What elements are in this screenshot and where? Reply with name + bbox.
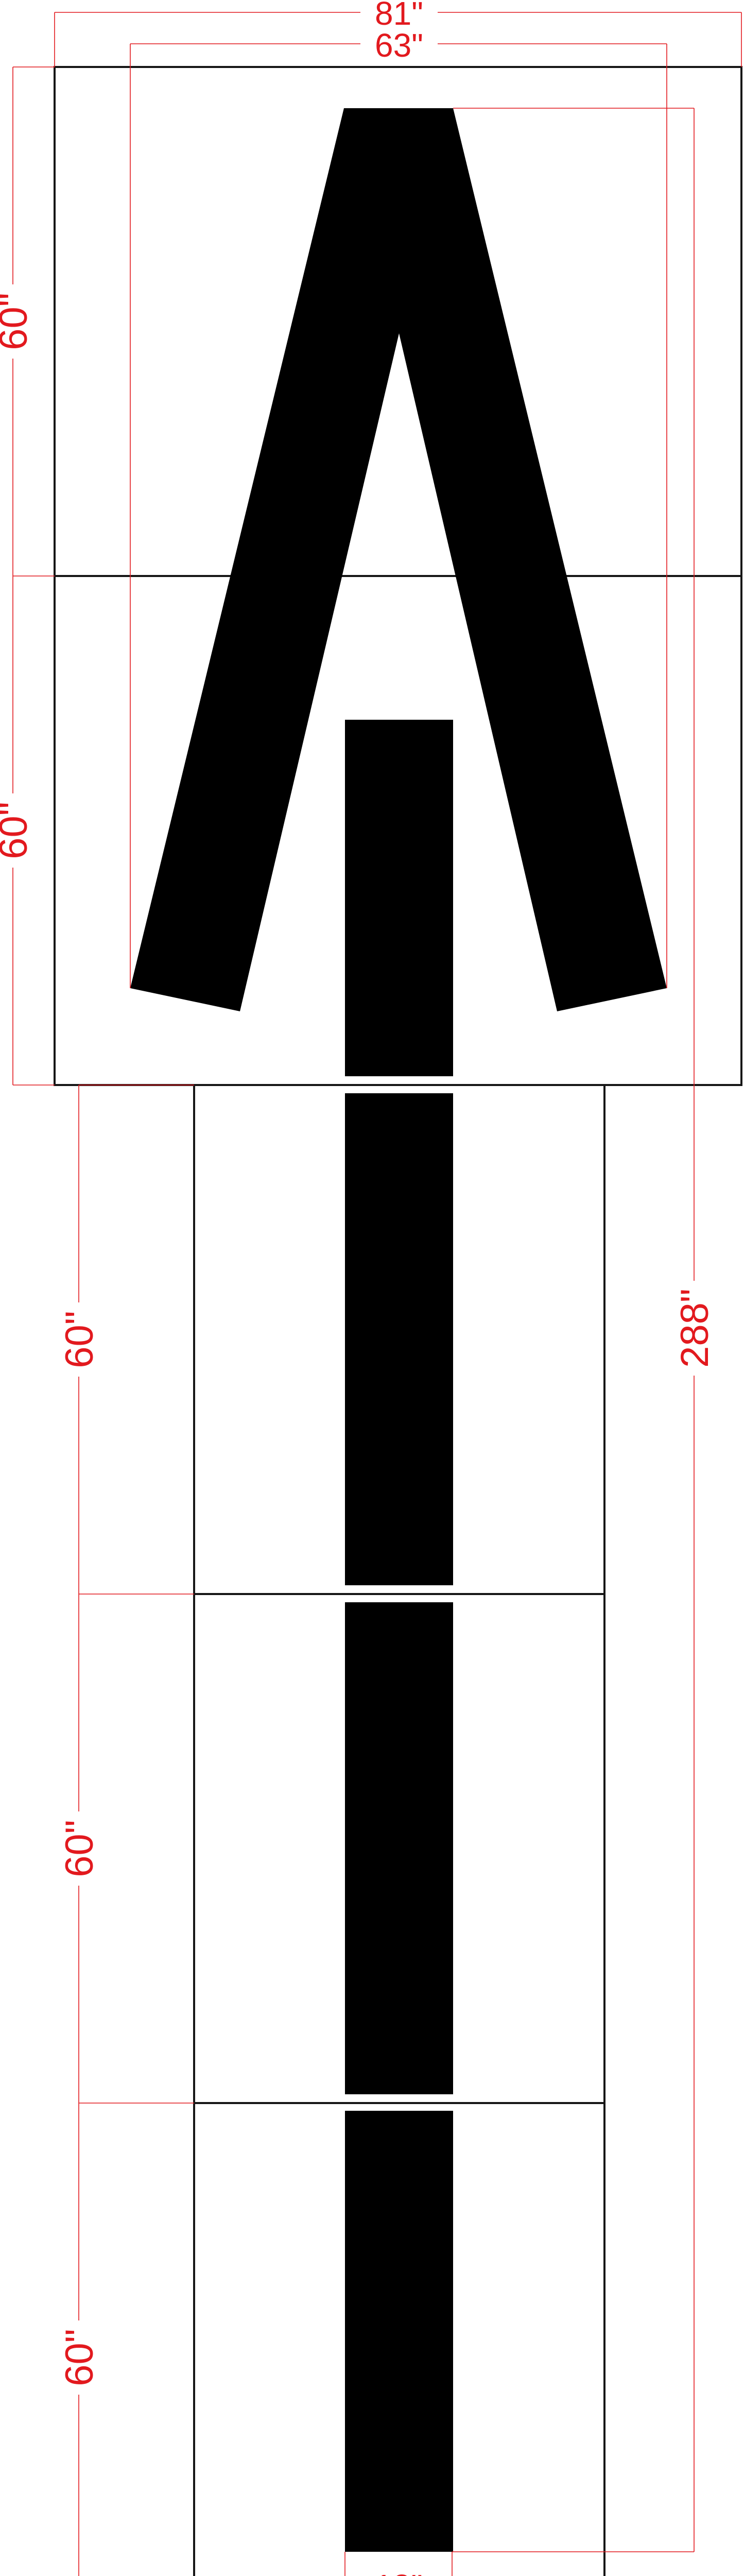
arrow-stencil-dimension-diagram: 81" 63" 60" 60" [0, 0, 744, 2576]
dim-label-288: 288" [673, 1289, 717, 1368]
dim-label-63: 63" [375, 27, 423, 64]
dim-label-60-panel3: 60" [58, 1311, 101, 1368]
arrow-stem-segment-4 [345, 2111, 453, 2552]
arrow-stem-segment-1 [345, 720, 453, 1076]
dim-label-13: 13" [374, 2568, 423, 2576]
dim-label-60-panel2: 60" [0, 802, 36, 859]
dim-60-bottom-panels: 60" 60" 60" [58, 1085, 194, 2576]
arrow-stem-segment-3 [345, 1602, 453, 2094]
dim-label-60-panel4: 60" [58, 1820, 101, 1877]
dim-label-60-panel1: 60" [0, 293, 36, 350]
dim-60-top-panels: 60" 60" [0, 67, 55, 1085]
dim-label-60-panel5: 60" [58, 2329, 101, 2386]
arrow-stem-segment-2 [345, 1093, 453, 1585]
drawing-canvas: 81" 63" 60" 60" [0, 0, 744, 2576]
